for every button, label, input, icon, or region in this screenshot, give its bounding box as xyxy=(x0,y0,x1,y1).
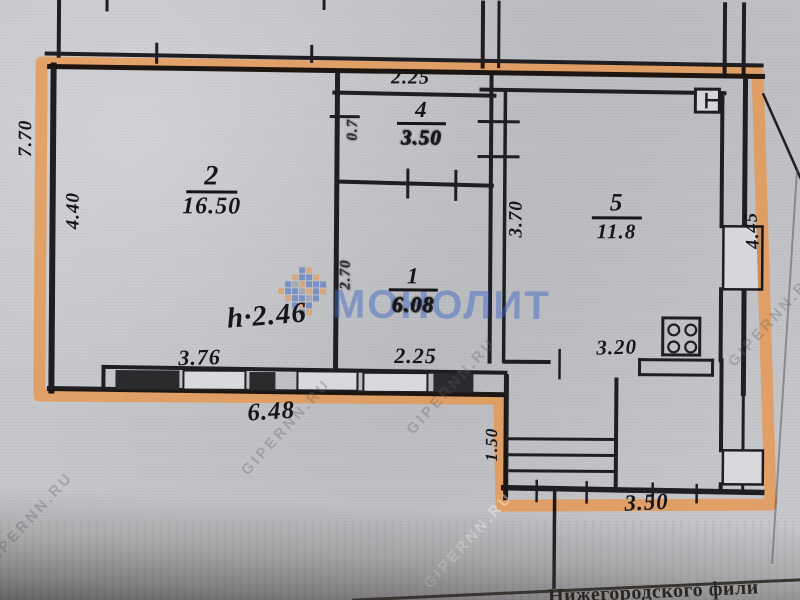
porch-step-2 xyxy=(510,455,615,456)
room-area: 16.50 xyxy=(182,195,241,221)
room-number: 5 xyxy=(592,190,642,220)
stove-icon xyxy=(663,318,700,355)
wall-room4-room1 xyxy=(337,182,492,186)
right-wall-inner-upper xyxy=(722,93,723,226)
floorplan-photo: МОНОЛИТ GIPERNN.RU GIPERNN.RU GIPERNN.RU… xyxy=(0,0,800,600)
dim-bottom-total: 6.48 xyxy=(247,397,296,428)
dim-room5-left: 3.70 xyxy=(505,200,527,237)
bottom-wall-pier-2 xyxy=(249,372,275,390)
dim-porch-bottom: 3.50 xyxy=(624,489,669,517)
ceiling-height-label: h·2.46 xyxy=(226,296,309,335)
room-2-label: 2 16.50 xyxy=(182,161,241,220)
dim-room1-bottom: 2.25 xyxy=(394,343,437,369)
room-area: 3.50 xyxy=(401,126,442,148)
upper-right-wall-a xyxy=(725,2,726,74)
room5-top-wall-inner xyxy=(481,90,724,94)
room-number: 1 xyxy=(389,264,438,291)
porch-step-3 xyxy=(510,471,615,472)
kitchen-bottom-wall-right-a xyxy=(640,360,713,361)
dim-room4-door: 0.7 xyxy=(345,119,362,141)
dim-room4-top: 2.25 xyxy=(391,66,430,89)
porch-step-1 xyxy=(510,439,615,440)
dim-kitchen-bottom: 3.20 xyxy=(596,334,637,360)
left-exterior-wall xyxy=(51,66,53,391)
upper-right-wall-b xyxy=(744,2,745,74)
dim-room2-bottom: 3.76 xyxy=(178,344,221,371)
page-edge-diagonal-top xyxy=(763,95,800,179)
room4-top-wall xyxy=(334,93,494,96)
kitchen-bottom-wall-right-b xyxy=(639,375,712,376)
bottom-window-1 xyxy=(183,370,245,389)
bottom-window-3 xyxy=(363,373,427,392)
dim-room2-left: 4.40 xyxy=(62,192,84,229)
porch-window xyxy=(723,450,763,484)
room-5-label: 5 11.8 xyxy=(592,190,642,243)
dim-left-total: 7.70 xyxy=(15,120,37,157)
electrical-panel-icon xyxy=(695,89,719,112)
room-number: 4 xyxy=(397,98,446,125)
dim-room1-left: 2.70 xyxy=(338,259,355,289)
dim-right-total: 4.45 xyxy=(740,211,765,250)
bottom-wall-pier-1 xyxy=(115,370,179,389)
room-area: 11.8 xyxy=(597,220,637,242)
room-area: 6.08 xyxy=(392,292,435,315)
monolit-watermark-text: МОНОЛИТ xyxy=(332,283,551,330)
floorplan-drawing: МОНОЛИТ GIPERNN.RU GIPERNN.RU GIPERNN.RU… xyxy=(0,0,800,600)
right-exterior-wall-upper xyxy=(745,76,746,226)
porch-right-wall-upper xyxy=(721,360,722,450)
room-1-label: 1 6.08 xyxy=(389,264,438,316)
dim-porch-left: 1.50 xyxy=(482,428,502,462)
room-number: 2 xyxy=(186,161,237,194)
room-4-label: 4 3.50 xyxy=(397,98,446,149)
